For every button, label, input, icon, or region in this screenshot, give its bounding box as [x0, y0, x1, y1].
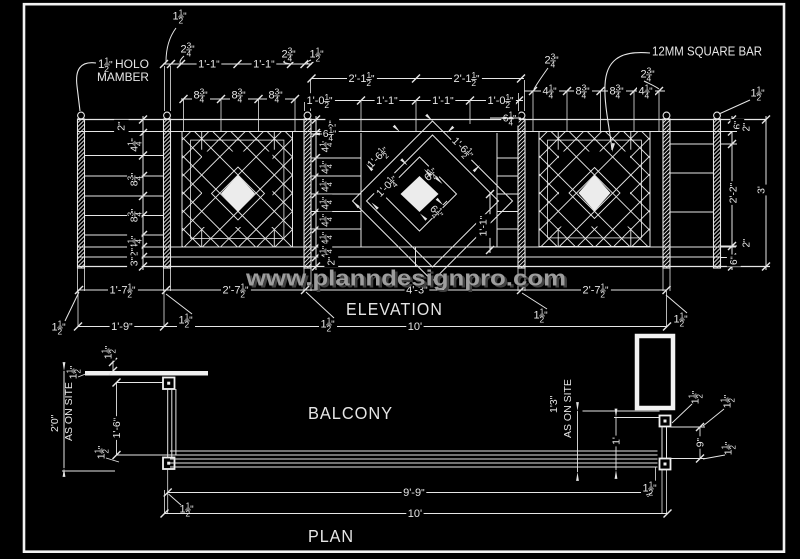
svg-text:1'-9": 1'-9" — [111, 321, 133, 333]
svg-text:MAMBER: MAMBER — [97, 72, 149, 84]
svg-text:AS ON SITE: AS ON SITE — [63, 382, 75, 441]
svg-text:1'-6": 1'-6" — [111, 418, 123, 439]
svg-text:1'-1": 1'-1" — [253, 59, 275, 71]
svg-text:2": 2" — [741, 123, 752, 132]
svg-text:2": 2" — [326, 257, 337, 266]
svg-text:2'-2": 2'-2" — [728, 183, 740, 204]
svg-text:1'-1": 1'-1" — [376, 95, 398, 107]
svg-text:1'-1": 1'-1" — [478, 216, 490, 237]
svg-text:6": 6" — [729, 256, 740, 265]
svg-text:1': 1' — [611, 437, 623, 445]
svg-text:1'-1": 1'-1" — [432, 95, 454, 107]
svg-text:9'-9": 9'-9" — [403, 487, 425, 499]
svg-text:HOLO: HOLO — [115, 59, 149, 71]
svg-text:PLAN: PLAN — [308, 526, 354, 546]
svg-text:www.planndesignpro.com: www.planndesignpro.com — [245, 266, 566, 291]
svg-text:AS ON SITE: AS ON SITE — [562, 379, 574, 438]
svg-text:10': 10' — [408, 508, 422, 520]
svg-text:9": 9" — [695, 438, 707, 447]
svg-text:1'-1": 1'-1" — [198, 59, 220, 71]
svg-text:ELEVATION: ELEVATION — [346, 299, 443, 319]
svg-text:2": 2" — [741, 239, 752, 248]
svg-text:3': 3' — [756, 186, 768, 194]
svg-text:3": 3" — [129, 257, 141, 266]
svg-text:BALCONY: BALCONY — [308, 403, 393, 423]
svg-text:2": 2" — [116, 121, 128, 130]
svg-text:2'0": 2'0" — [49, 414, 61, 432]
svg-text:12MM SQUARE BAR: 12MM SQUARE BAR — [652, 44, 762, 59]
svg-text:10': 10' — [408, 321, 422, 333]
svg-text:1'3": 1'3" — [548, 395, 560, 413]
